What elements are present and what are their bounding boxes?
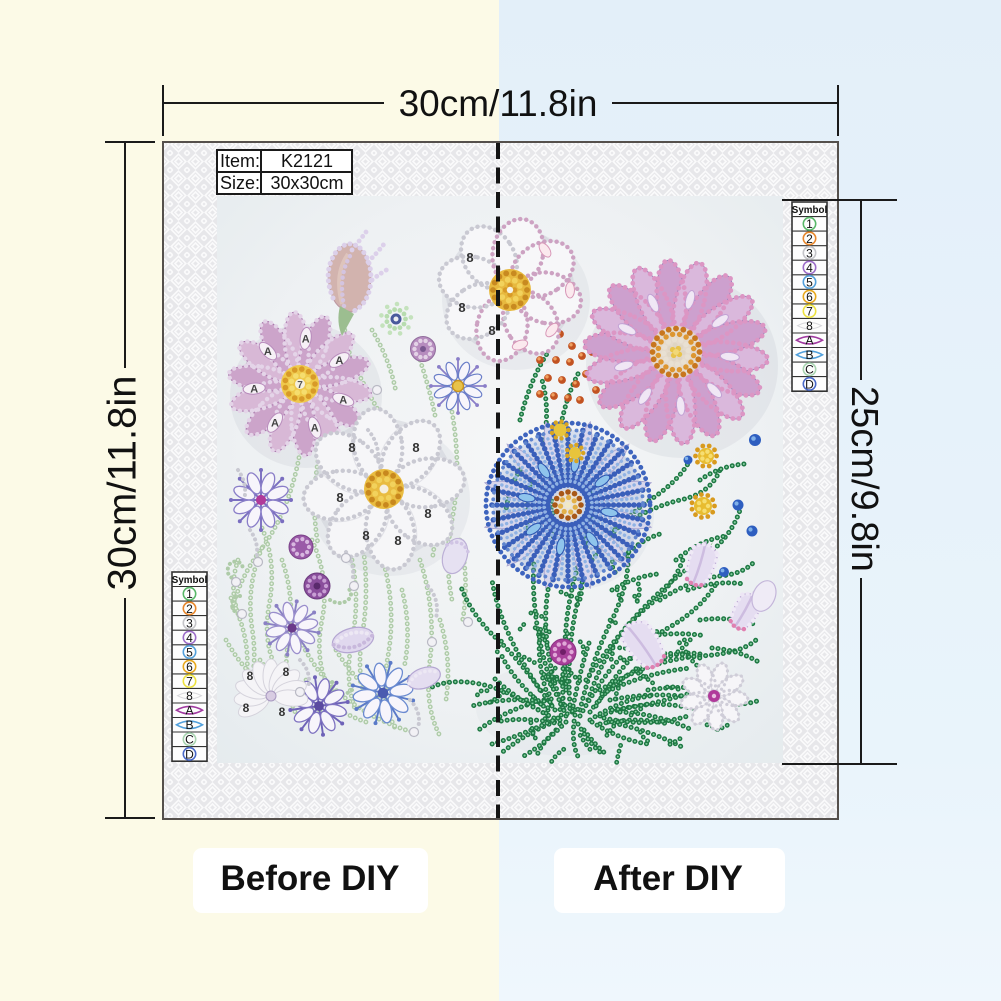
svg-text:8: 8 xyxy=(243,701,250,715)
svg-text:7: 7 xyxy=(186,675,193,689)
svg-text:1: 1 xyxy=(186,587,193,601)
svg-text:8: 8 xyxy=(488,323,495,338)
svg-text:1: 1 xyxy=(806,217,813,231)
svg-text:C: C xyxy=(805,363,814,377)
svg-text:8: 8 xyxy=(458,300,465,315)
svg-text:8: 8 xyxy=(424,506,431,521)
svg-text:C: C xyxy=(185,733,194,747)
svg-text:8: 8 xyxy=(348,440,355,455)
svg-text:30cm/11.8in: 30cm/11.8in xyxy=(101,376,145,591)
svg-text:A: A xyxy=(805,334,813,348)
svg-text:2: 2 xyxy=(806,232,813,246)
svg-text:Symbol: Symbol xyxy=(172,575,208,586)
svg-text:6: 6 xyxy=(186,660,193,674)
svg-text:A: A xyxy=(302,333,310,345)
svg-text:7: 7 xyxy=(297,380,303,391)
svg-text:A: A xyxy=(271,418,279,430)
svg-text:A: A xyxy=(185,704,193,718)
svg-text:8: 8 xyxy=(412,440,419,455)
svg-text:8: 8 xyxy=(279,705,286,719)
svg-text:A: A xyxy=(264,346,272,358)
svg-text:Size:: Size: xyxy=(220,173,260,193)
svg-text:4: 4 xyxy=(806,261,813,275)
svg-text:8: 8 xyxy=(247,669,254,683)
svg-text:Item:: Item: xyxy=(220,151,260,171)
svg-text:7: 7 xyxy=(806,305,813,319)
svg-text:8: 8 xyxy=(186,689,193,703)
svg-text:8: 8 xyxy=(283,665,290,679)
svg-text:After DIY: After DIY xyxy=(593,859,743,898)
svg-text:2: 2 xyxy=(186,602,193,616)
svg-text:25cm/9.8in: 25cm/9.8in xyxy=(843,386,885,572)
svg-text:A: A xyxy=(335,355,343,367)
svg-text:3: 3 xyxy=(186,616,193,630)
svg-text:8: 8 xyxy=(362,528,369,543)
svg-text:Symbol: Symbol xyxy=(792,205,828,216)
svg-text:8: 8 xyxy=(336,490,343,505)
svg-text:A: A xyxy=(250,384,258,396)
svg-text:5: 5 xyxy=(806,275,813,289)
svg-text:3: 3 xyxy=(806,246,813,260)
svg-text:6: 6 xyxy=(806,290,813,304)
svg-text:Before DIY: Before DIY xyxy=(221,859,400,898)
svg-text:8: 8 xyxy=(394,533,401,548)
svg-text:8: 8 xyxy=(466,250,473,265)
svg-text:B: B xyxy=(805,348,813,362)
svg-text:D: D xyxy=(185,747,194,761)
svg-text:30cm/11.8in: 30cm/11.8in xyxy=(399,83,598,124)
svg-text:4: 4 xyxy=(186,631,193,645)
svg-text:30x30cm: 30x30cm xyxy=(270,173,343,193)
svg-text:K2121: K2121 xyxy=(281,151,333,171)
svg-text:5: 5 xyxy=(186,645,193,659)
svg-text:A: A xyxy=(339,395,347,407)
svg-text:B: B xyxy=(185,718,193,732)
svg-text:A: A xyxy=(311,423,319,435)
svg-text:8: 8 xyxy=(806,319,813,333)
svg-text:D: D xyxy=(805,377,814,391)
